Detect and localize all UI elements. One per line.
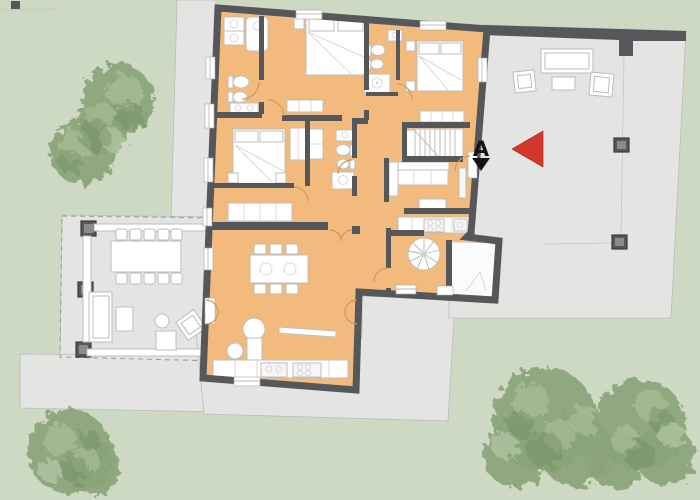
armchair bbox=[513, 70, 536, 93]
toilet bbox=[336, 145, 350, 156]
pillow bbox=[419, 43, 439, 54]
nightstand bbox=[406, 81, 415, 91]
outdoor-sofa bbox=[541, 49, 593, 73]
straight-stairs bbox=[403, 129, 463, 159]
round-table bbox=[155, 314, 169, 328]
armchair bbox=[589, 72, 614, 97]
post bbox=[614, 138, 629, 152]
column bbox=[227, 343, 243, 359]
nightstand bbox=[228, 173, 238, 183]
storage-room bbox=[449, 242, 496, 297]
toilet bbox=[371, 45, 385, 56]
outdoor-dining-table bbox=[111, 241, 181, 272]
bidet bbox=[371, 59, 384, 69]
nightstand bbox=[276, 173, 286, 183]
toilet bbox=[233, 76, 249, 88]
column bbox=[243, 318, 265, 340]
pillow bbox=[235, 131, 258, 142]
coffee-table bbox=[552, 77, 575, 90]
terrace-below-pergola bbox=[20, 354, 225, 412]
section-label: A bbox=[473, 137, 490, 161]
spiral-stairs bbox=[408, 238, 440, 270]
nightstand bbox=[406, 41, 415, 51]
shower bbox=[332, 172, 354, 189]
dresser bbox=[287, 100, 323, 112]
sink bbox=[261, 363, 287, 377]
floor-plan: A bbox=[0, 0, 700, 500]
planter-bench bbox=[87, 349, 207, 356]
post bbox=[612, 235, 627, 249]
boundary-wall-stub bbox=[11, 1, 20, 9]
sink bbox=[454, 219, 467, 231]
pillow bbox=[441, 43, 461, 54]
bidet bbox=[233, 92, 247, 103]
pillow bbox=[260, 131, 283, 142]
armchair bbox=[156, 331, 176, 350]
dining-table bbox=[250, 255, 308, 283]
wardrobe bbox=[290, 128, 307, 160]
tv-board bbox=[459, 168, 466, 198]
sofa bbox=[398, 170, 448, 185]
nightstand bbox=[294, 18, 304, 29]
stove bbox=[424, 219, 444, 232]
stove bbox=[293, 363, 321, 377]
outdoor-sofa bbox=[89, 292, 112, 342]
side-table bbox=[116, 307, 133, 331]
pillow bbox=[309, 19, 334, 31]
